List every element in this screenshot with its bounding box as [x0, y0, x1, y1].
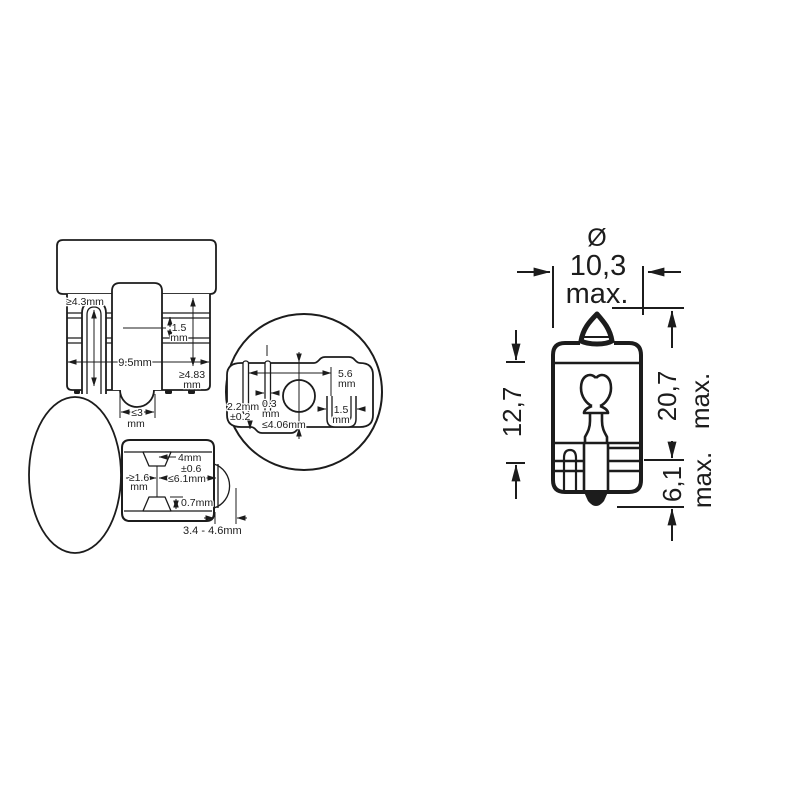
diameter-symbol-label: Ø [587, 224, 606, 252]
overall-length-label: 20,7 [652, 371, 682, 422]
outline-view: Ø 10,3 max. [497, 224, 717, 541]
diagram-page: ≥4.3mm 1.5 mm 9.5mm ≥4.83 mm ≤3 mm [0, 0, 800, 800]
overall-length-qualifier-label: max. [685, 373, 715, 429]
contact-offset-tolerance-label: ±0.2 [230, 411, 251, 423]
base-width-label: 9.5mm [118, 357, 152, 369]
slot-width-unit-label: mm [332, 414, 350, 426]
dim-base-height: 6,1 max. [617, 452, 717, 541]
seal-bump-side [214, 464, 230, 508]
notch-to-seal-label: ≤6.1mm [168, 473, 206, 485]
bottom-view: ≤4.06mm 5.6 mm 0.3 mm 2.2mm ±0.2 1.5 mm [226, 314, 382, 470]
bulb-tip [581, 314, 612, 344]
technical-drawing-canvas: ≥4.3mm 1.5 mm 9.5mm ≥4.83 mm ≤3 mm [0, 0, 800, 800]
bulb-body-outline [553, 343, 641, 492]
glass-seal-column [112, 283, 162, 390]
seal-protrusion-label: 3.4 - 4.6mm [183, 525, 242, 537]
base-height-label: 6,1 [657, 466, 687, 502]
base-detail [554, 443, 640, 491]
glass-length-label: 12,7 [497, 387, 527, 438]
seal-depth-unit-label: mm [183, 379, 201, 391]
dim-glass-length: 12,7 [497, 330, 527, 499]
glass-circle [29, 397, 121, 553]
diameter-qualifier-label: max. [566, 278, 629, 310]
base-height-qualifier-label: max. [687, 452, 717, 508]
groove-pitch-unit-label: mm [170, 332, 188, 344]
dim-overall-length: 20,7 max. [644, 311, 715, 460]
contact-thickness-unit-label: mm [262, 408, 280, 420]
wedge-tip [584, 492, 608, 506]
filament [581, 375, 611, 442]
bump-width-unit-label: mm [127, 418, 145, 430]
contact-span-unit-label: mm [338, 378, 356, 390]
wire-length-label: ≥4.3mm [66, 296, 104, 308]
wedge-thickness-label: ≤4.06mm [262, 419, 306, 431]
notch-depth-label: 0.7mm [181, 497, 213, 509]
seal-bump [120, 390, 154, 407]
edge-distance-unit-label: mm [130, 481, 148, 493]
